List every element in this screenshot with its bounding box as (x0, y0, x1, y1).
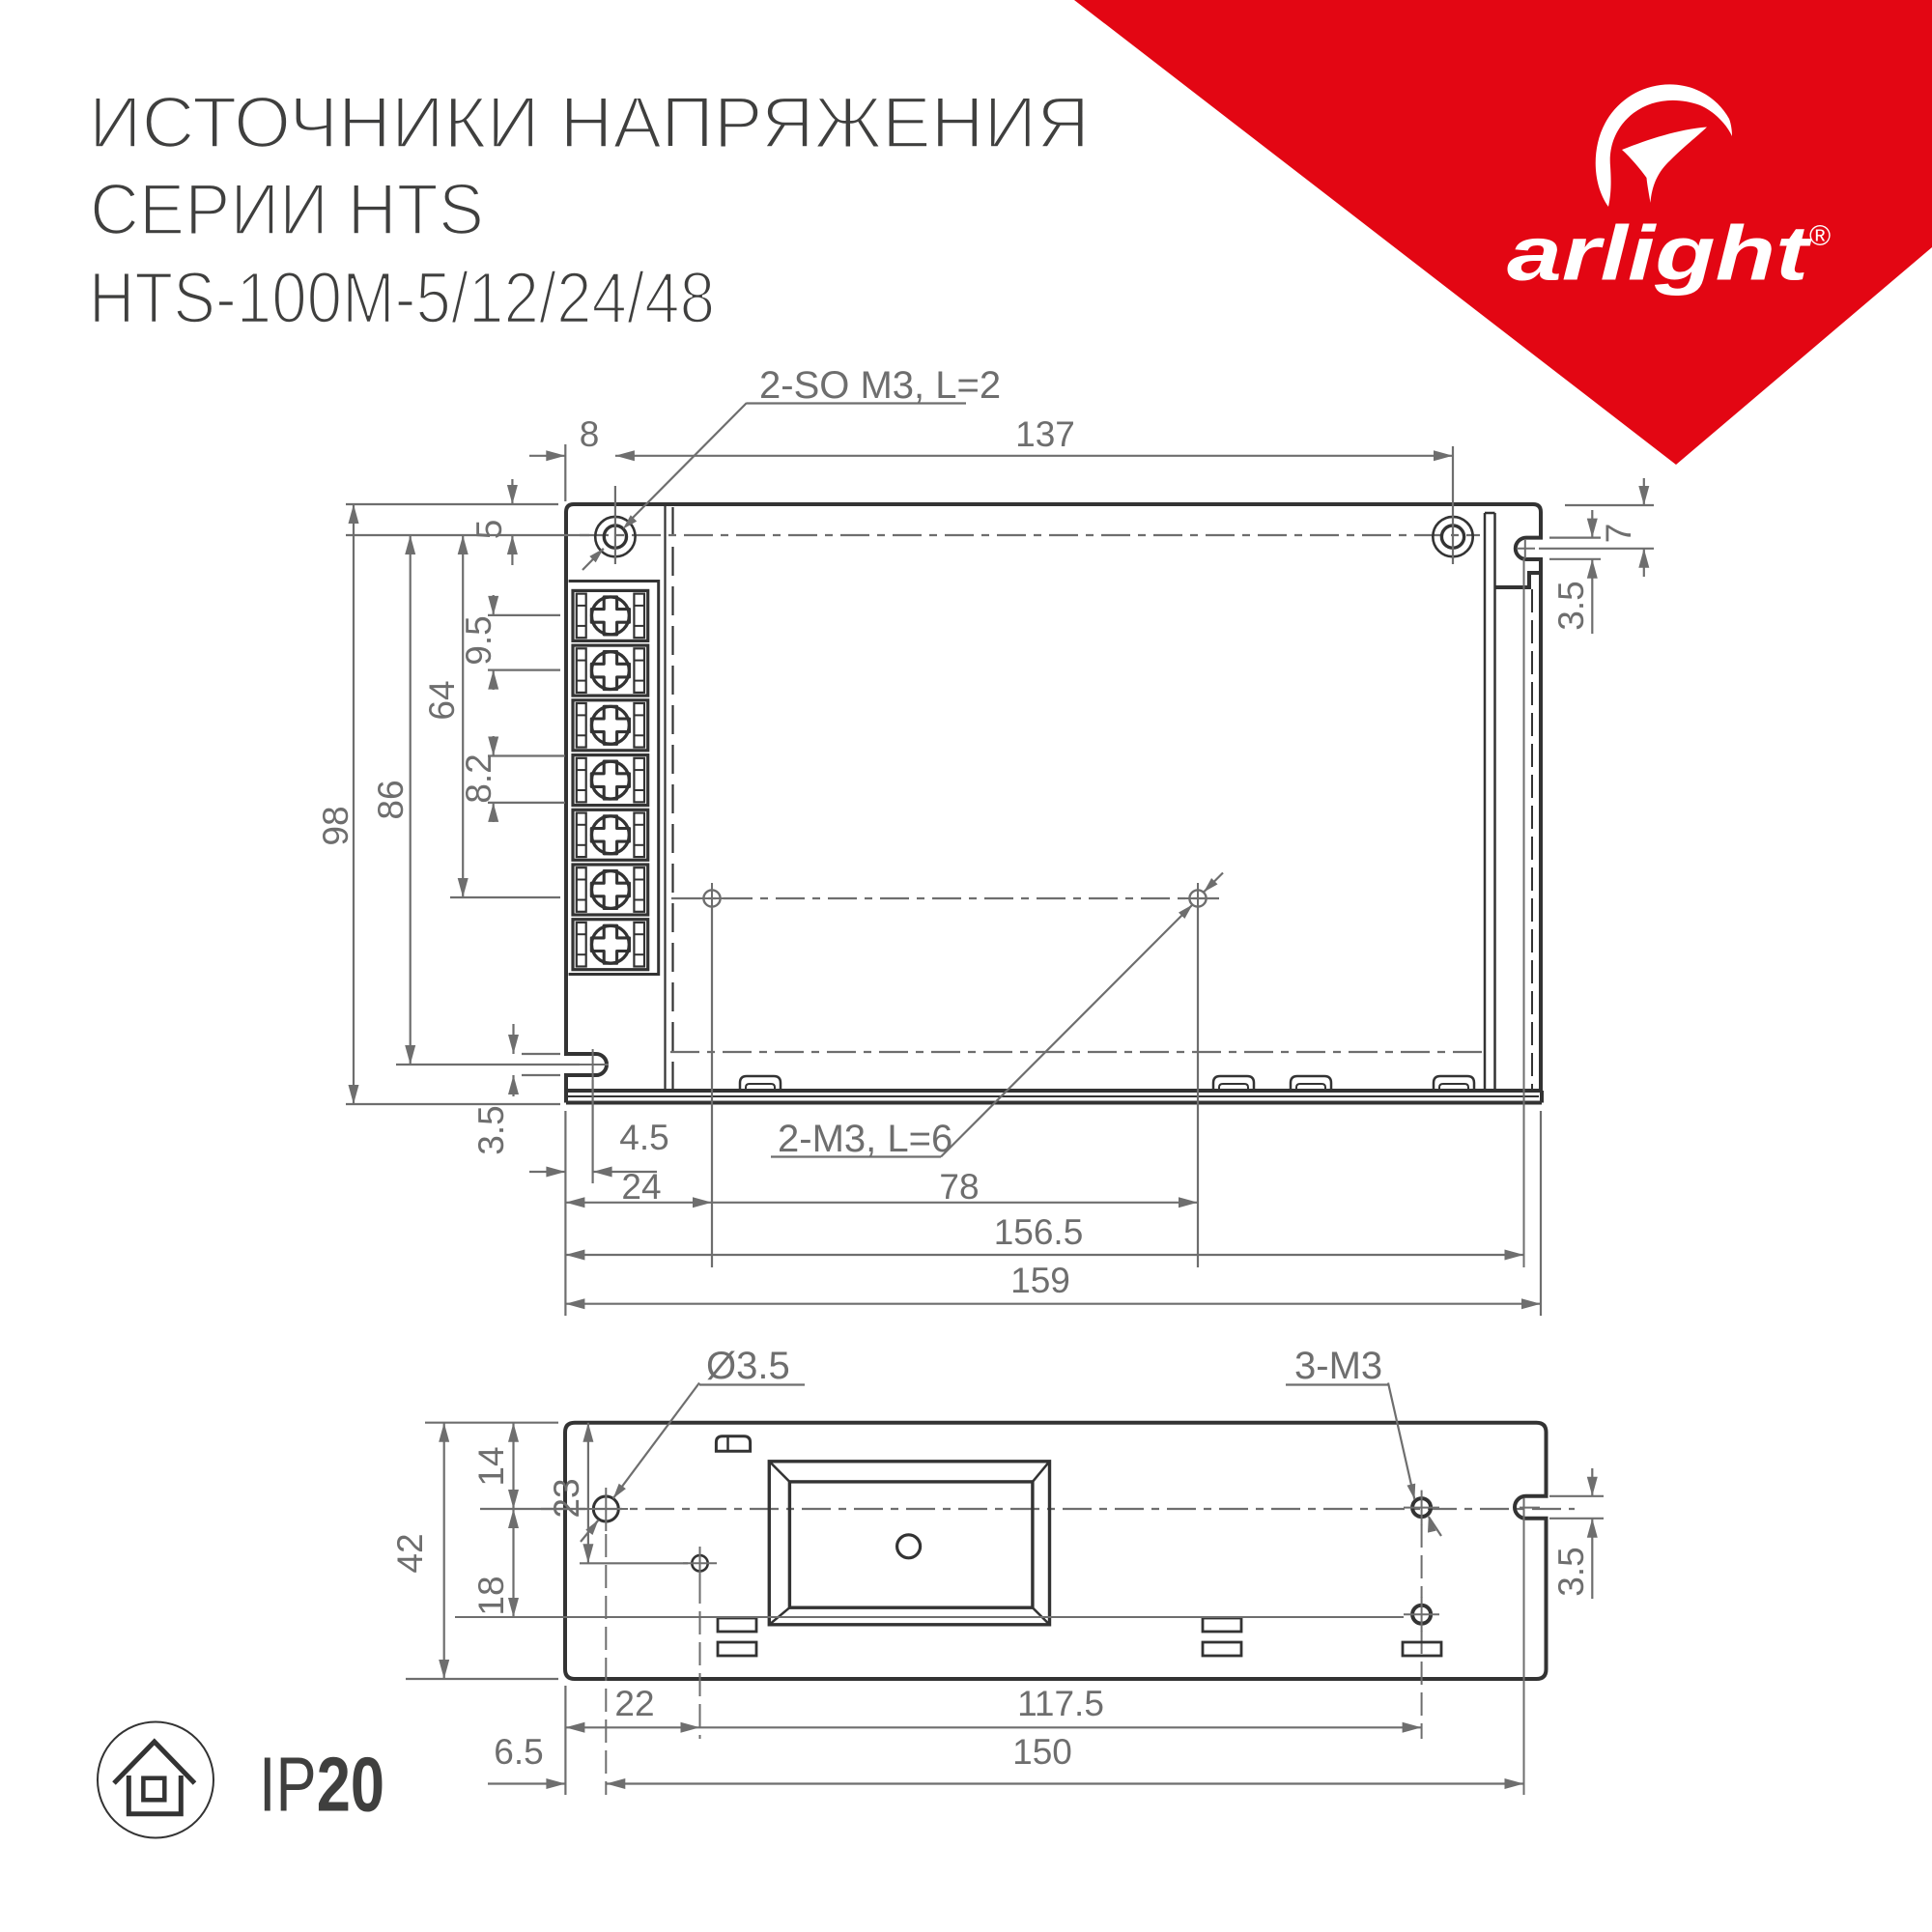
svg-text:®: ® (1809, 220, 1831, 252)
svg-text:IP20: IP20 (259, 1743, 384, 1829)
svg-text:42: 42 (390, 1533, 430, 1573)
svg-text:2-SO M3, L=2: 2-SO M3, L=2 (759, 364, 1001, 407)
svg-text:137: 137 (1015, 414, 1075, 454)
svg-text:18: 18 (471, 1576, 511, 1615)
svg-text:156.5: 156.5 (994, 1212, 1084, 1252)
svg-text:5: 5 (469, 520, 509, 540)
svg-text:3.5: 3.5 (1551, 581, 1591, 630)
svg-text:98: 98 (316, 806, 355, 845)
svg-text:6.5: 6.5 (494, 1732, 543, 1772)
svg-text:СЕРИИ HTS: СЕРИИ HTS (90, 169, 484, 250)
svg-text:3-M3: 3-M3 (1294, 1345, 1382, 1387)
svg-text:159: 159 (1010, 1261, 1070, 1300)
svg-text:78: 78 (939, 1167, 979, 1207)
svg-text:64: 64 (422, 680, 462, 720)
svg-text:3.5: 3.5 (1551, 1547, 1591, 1596)
svg-text:24: 24 (621, 1167, 661, 1207)
svg-text:14: 14 (471, 1446, 511, 1486)
svg-text:HTS-100M-5/12/24/48: HTS-100M-5/12/24/48 (89, 257, 715, 338)
svg-text:2-M3, L=6: 2-M3, L=6 (778, 1118, 952, 1160)
svg-text:7: 7 (1599, 524, 1638, 544)
svg-text:22: 22 (614, 1684, 654, 1723)
svg-text:9.5: 9.5 (459, 615, 498, 665)
svg-text:86: 86 (371, 780, 411, 819)
svg-text:ИСТОЧНИКИ НАПРЯЖЕНИЯ: ИСТОЧНИКИ НАПРЯЖЕНИЯ (89, 81, 1090, 162)
svg-text:Ø3.5: Ø3.5 (706, 1345, 790, 1387)
svg-text:arlight: arlight (1507, 211, 1812, 297)
svg-text:3.5: 3.5 (471, 1105, 511, 1154)
svg-text:8.2: 8.2 (459, 753, 498, 803)
svg-text:117.5: 117.5 (1017, 1684, 1104, 1723)
svg-text:8: 8 (580, 414, 600, 454)
svg-text:150: 150 (1012, 1732, 1072, 1772)
svg-text:4.5: 4.5 (619, 1118, 668, 1157)
svg-text:23: 23 (547, 1478, 586, 1518)
